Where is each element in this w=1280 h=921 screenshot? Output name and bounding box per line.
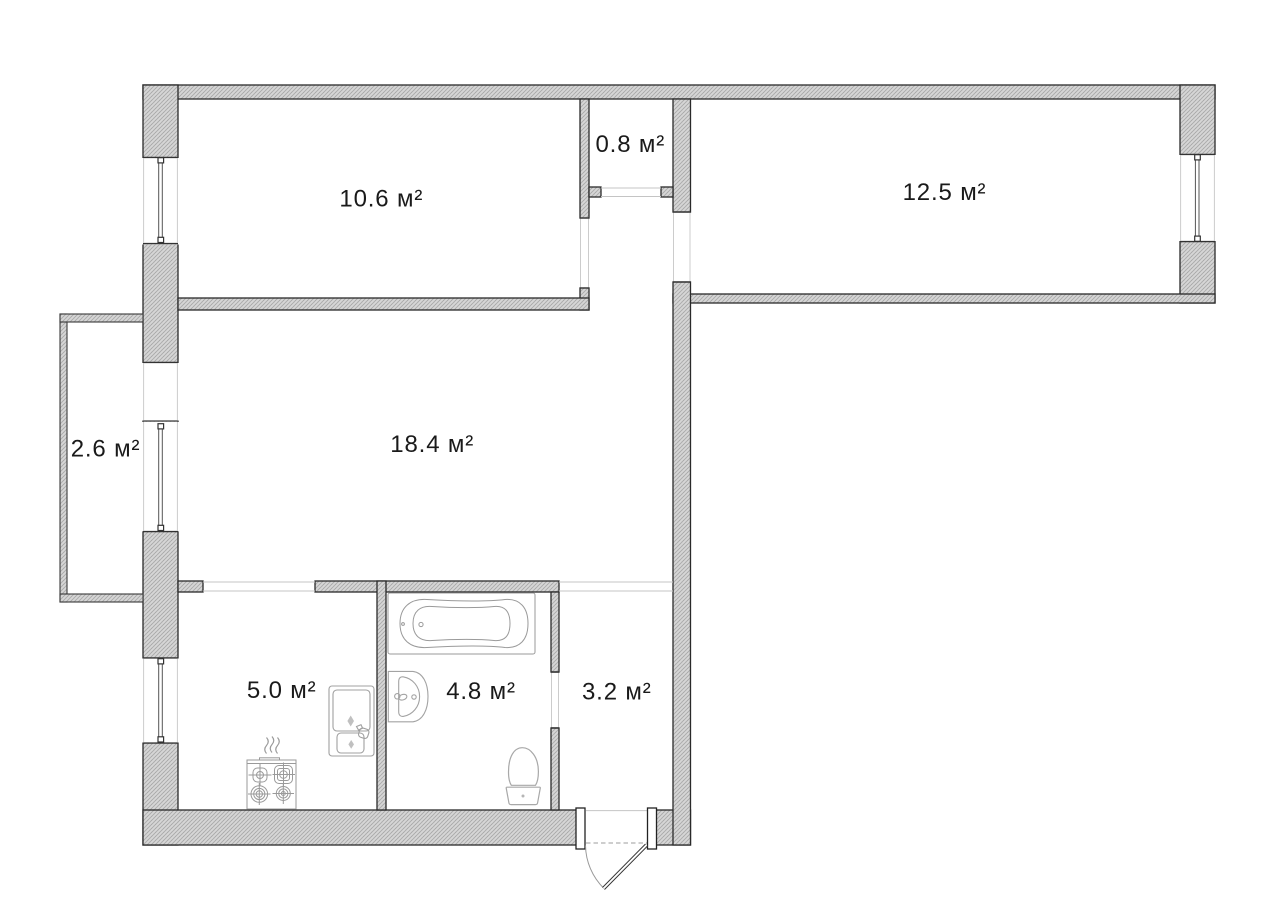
svg-text:18.4 м²: 18.4 м² xyxy=(390,431,474,458)
svg-text:12.5 м²: 12.5 м² xyxy=(903,179,987,206)
svg-text:5.0 м²: 5.0 м² xyxy=(247,677,317,704)
svg-text:4.8 м²: 4.8 м² xyxy=(446,678,516,705)
svg-text:3.2 м²: 3.2 м² xyxy=(582,679,652,706)
svg-text:10.6 м²: 10.6 м² xyxy=(339,185,423,212)
svg-text:0.8 м²: 0.8 м² xyxy=(595,131,665,158)
svg-text:2.6 м²: 2.6 м² xyxy=(71,436,141,463)
